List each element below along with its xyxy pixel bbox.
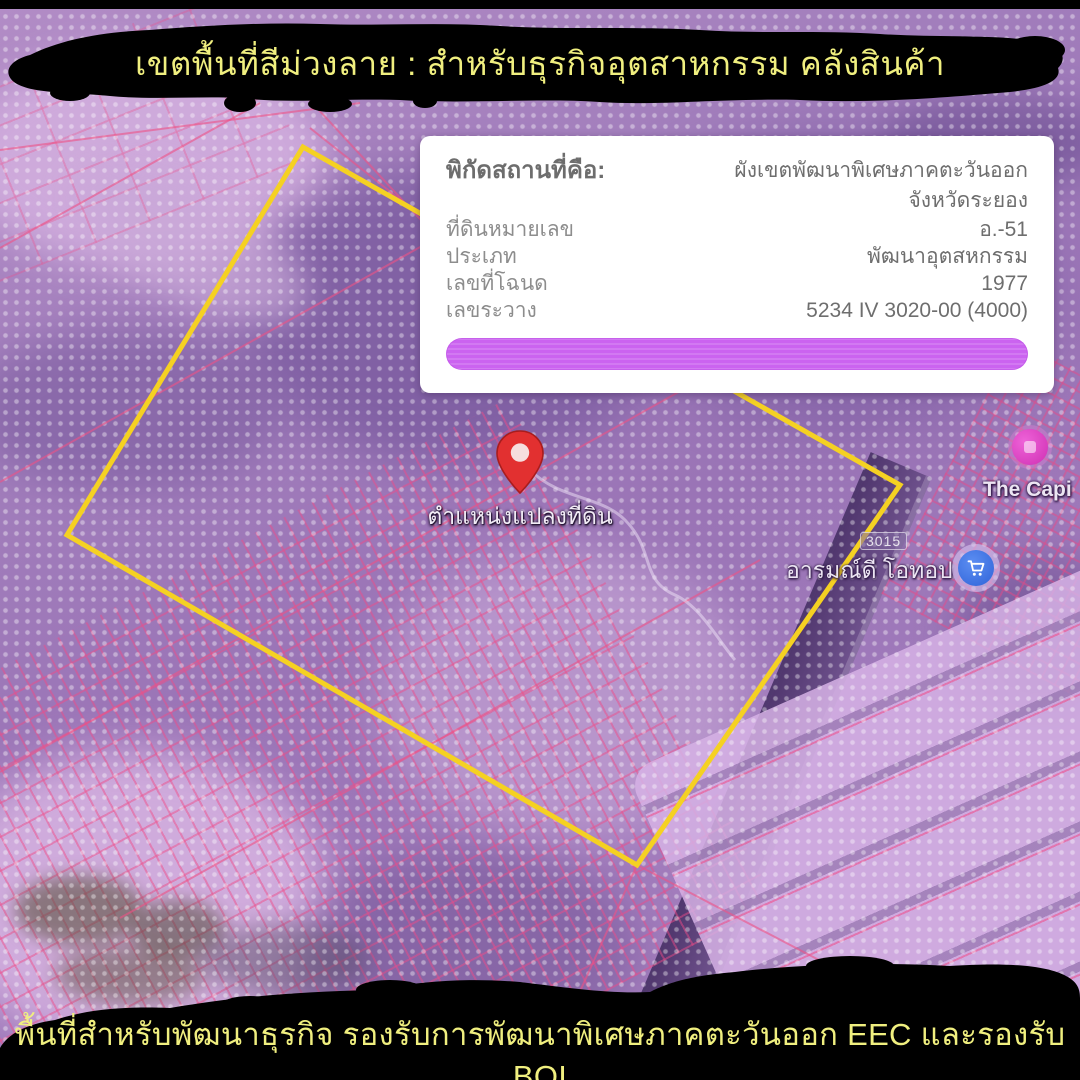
field-value-parcel-no: อ.-51: [979, 216, 1028, 243]
place-poi-icon[interactable]: [1012, 429, 1048, 465]
infographic-canvas: 3015 The Capi อารมณ์ดี โอทอป ตำแหน่งแปลง…: [0, 0, 1080, 1080]
field-label-type: ประเภท: [446, 243, 517, 270]
purple-accent-bar: [446, 338, 1028, 370]
shopping-poi-icon[interactable]: [958, 550, 994, 586]
field-value-type: พัฒนาอุตสหกรรม: [867, 243, 1028, 270]
building-icon: [1024, 441, 1036, 453]
top-banner-title: เขตพื้นที่สีม่วงลาย : สำหรับธุรกิจอุตสาห…: [0, 37, 1080, 90]
field-value-deed-no: 1977: [981, 270, 1028, 297]
shopping-poi-ring: [952, 544, 1000, 592]
bottom-banner-title: พื้นที่สำหรับพัฒนาธุรกิจ รองรับการพัฒนาพ…: [0, 1009, 1080, 1080]
card-title-label: พิกัดสถานที่คือ:: [446, 156, 605, 186]
place-label-the-capital: The Capi: [983, 478, 1072, 502]
card-title-row: พิกัดสถานที่คือ: ผังเขตพัฒนาพิเศษภาคตะวั…: [446, 156, 1028, 186]
card-title-value-line2: จังหวัดระยอง: [908, 186, 1028, 216]
shopping-cart-icon: [966, 558, 986, 578]
location-pin-icon[interactable]: [494, 429, 546, 495]
field-label-deed-no: เลขที่โฉนด: [446, 270, 548, 297]
card-field-row: เลขที่โฉนด 1977: [446, 270, 1028, 297]
land-info-card: พิกัดสถานที่คือ: ผังเขตพัฒนาพิเศษภาคตะวั…: [420, 136, 1054, 393]
route-shield: 3015: [860, 532, 907, 550]
field-label-parcel-no: ที่ดินหมายเลข: [446, 216, 574, 243]
card-title-row2: จังหวัดระยอง: [446, 186, 1028, 216]
place-label-otop-shop: อารมณ์ดี โอทอป: [786, 553, 953, 589]
pin-caption: ตำแหน่งแปลงที่ดิน: [400, 499, 640, 535]
card-field-row: เลขระวาง 5234 IV 3020-00 (4000): [446, 297, 1028, 324]
field-value-sheet-no: 5234 IV 3020-00 (4000): [806, 297, 1028, 324]
card-field-row: ที่ดินหมายเลข อ.-51: [446, 216, 1028, 243]
card-title-value-line1: ผังเขตพัฒนาพิเศษภาคตะวันออก: [734, 156, 1028, 186]
field-label-sheet-no: เลขระวาง: [446, 297, 537, 324]
card-field-row: ประเภท พัฒนาอุตสหกรรม: [446, 243, 1028, 270]
